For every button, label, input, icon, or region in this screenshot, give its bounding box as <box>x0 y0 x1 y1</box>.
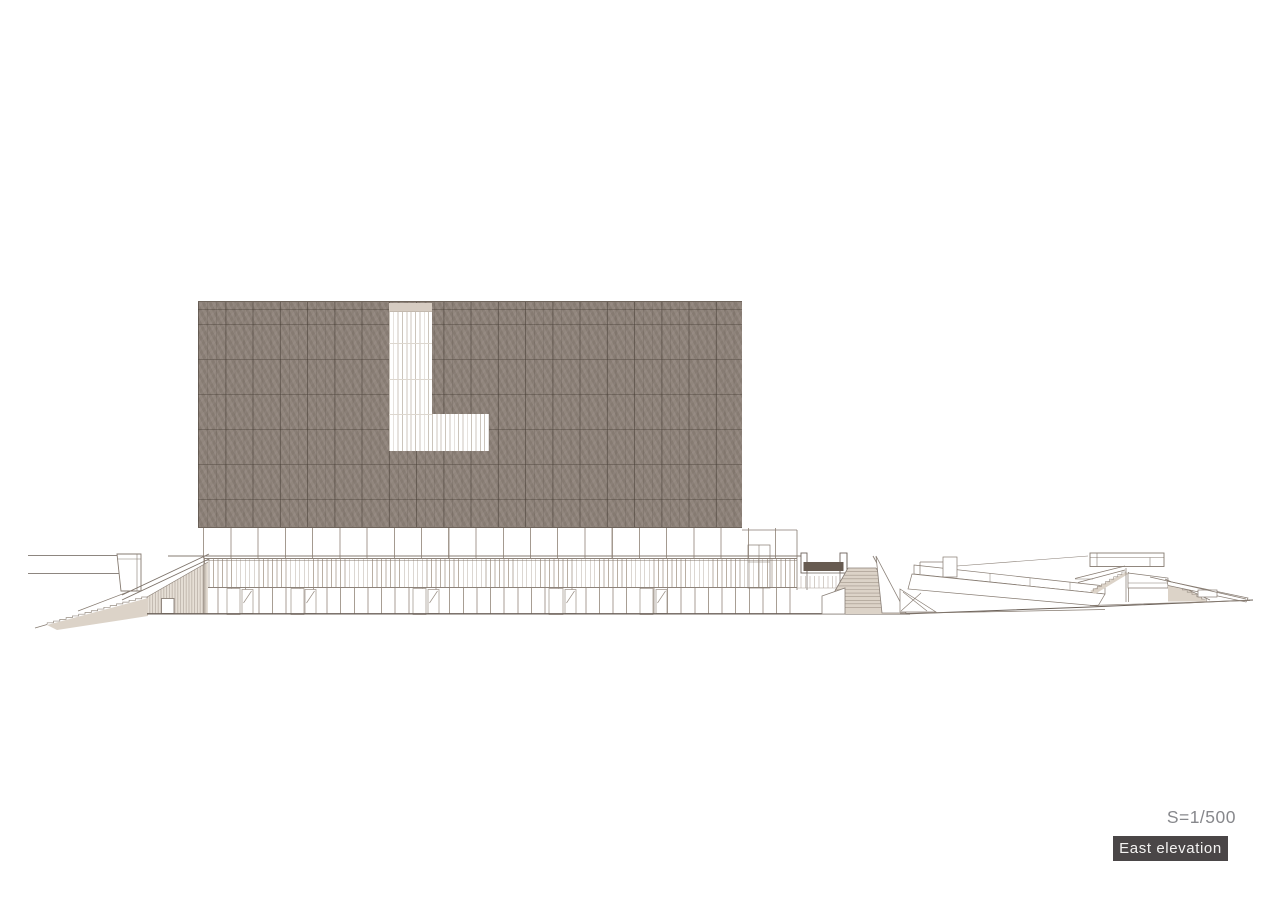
elevation-canvas: S=1/500 East elevation <box>0 0 1280 905</box>
facade-block <box>198 301 742 528</box>
colonnade-band <box>203 528 797 558</box>
base-band <box>204 588 797 614</box>
terraced-stand <box>1075 553 1250 606</box>
glazing-l-vertical <box>389 303 432 451</box>
title-badge: East elevation <box>1113 836 1228 861</box>
louver-band <box>204 558 797 588</box>
floor-line <box>389 414 432 415</box>
glazing-l-horizontal <box>432 414 489 451</box>
entry-notch <box>797 553 847 590</box>
floor-line <box>389 343 432 344</box>
ramp-complex <box>900 556 1105 614</box>
fan-stair <box>822 556 906 614</box>
glazing-top-band <box>389 303 432 312</box>
left-grand-stair <box>28 554 209 630</box>
stair-kiosk <box>117 554 141 591</box>
floor-line <box>389 379 432 380</box>
title-badge-label: East elevation <box>1119 840 1222 857</box>
scale-label: S=1/500 <box>1167 807 1236 828</box>
